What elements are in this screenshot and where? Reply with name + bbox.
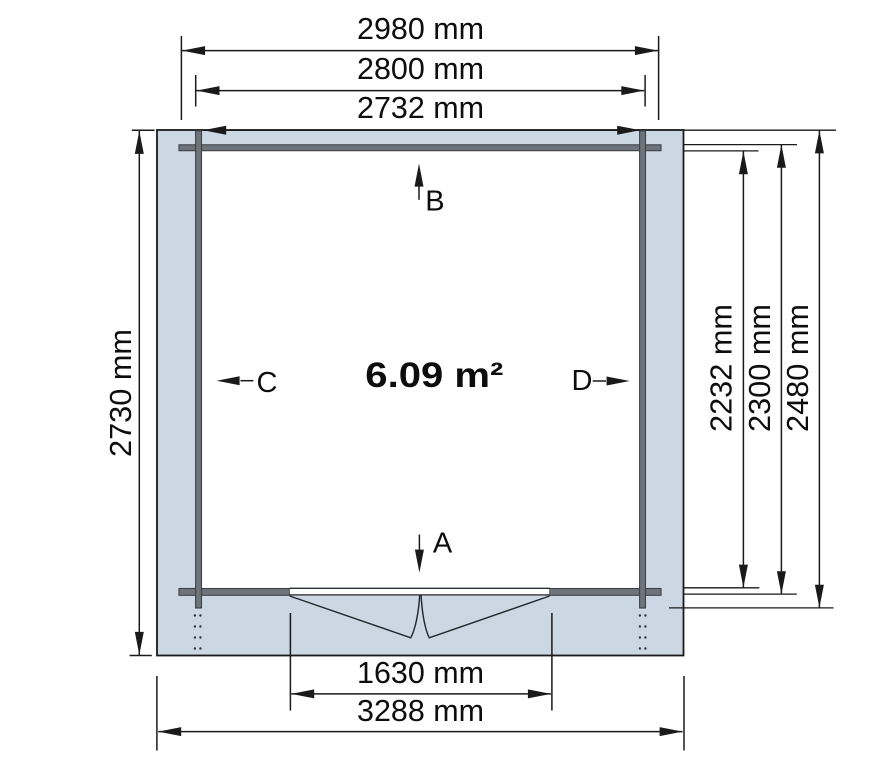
svg-text:2232 mm: 2232 mm xyxy=(704,304,739,432)
svg-text:2730 mm: 2730 mm xyxy=(103,329,138,457)
svg-text:A: A xyxy=(433,528,453,560)
svg-text:3288 mm: 3288 mm xyxy=(357,693,484,728)
svg-text:2732 mm: 2732 mm xyxy=(357,90,484,125)
svg-text:2480 mm: 2480 mm xyxy=(780,304,815,432)
svg-text:2800 mm: 2800 mm xyxy=(357,51,484,86)
svg-text:1630 mm: 1630 mm xyxy=(357,655,484,690)
svg-text:2980 mm: 2980 mm xyxy=(357,11,484,46)
svg-text:6.09 m²: 6.09 m² xyxy=(365,356,503,395)
svg-text:D: D xyxy=(572,365,593,397)
svg-text:C: C xyxy=(257,367,278,399)
svg-text:B: B xyxy=(425,185,444,217)
svg-text:2300 mm: 2300 mm xyxy=(742,304,777,432)
